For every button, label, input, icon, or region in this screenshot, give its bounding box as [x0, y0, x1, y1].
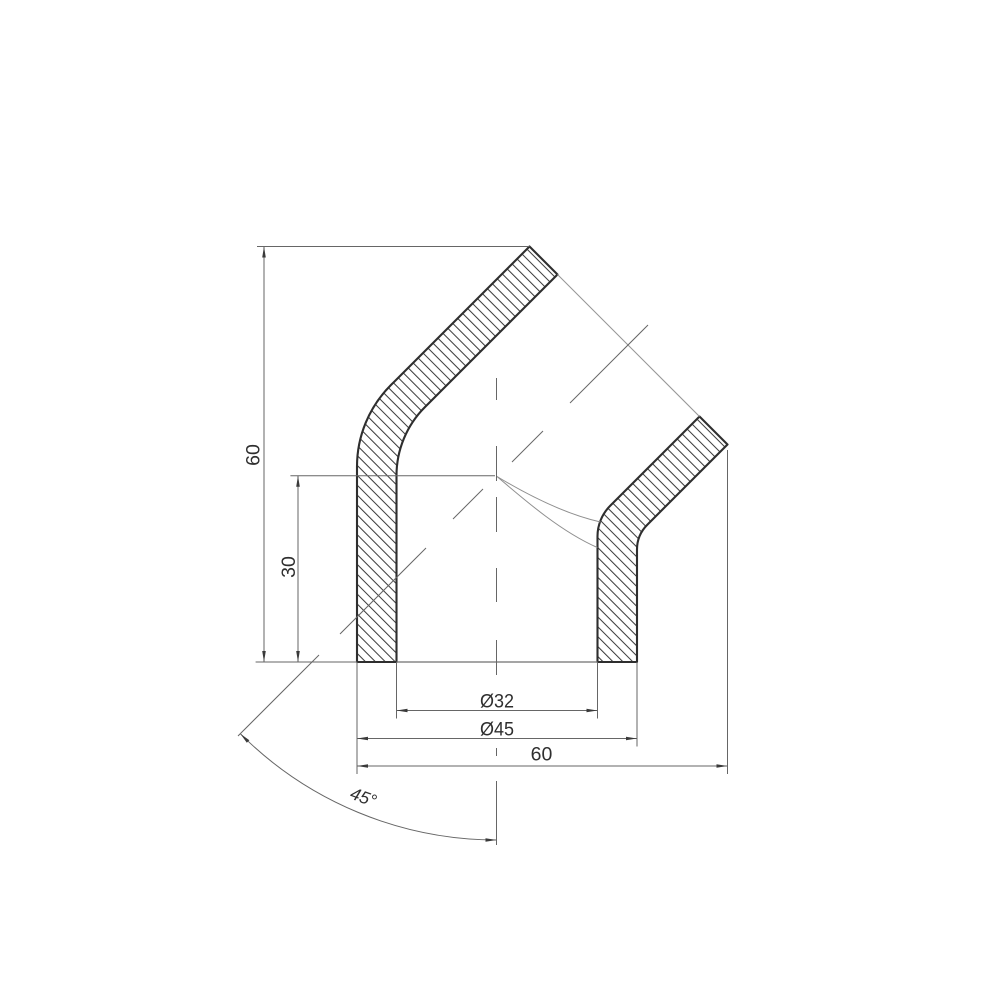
svg-text:60: 60: [243, 444, 265, 466]
svg-text:Ø32: Ø32: [480, 691, 514, 713]
svg-text:60: 60: [531, 744, 553, 766]
svg-text:Ø45: Ø45: [480, 719, 514, 741]
svg-text:30: 30: [278, 556, 300, 578]
